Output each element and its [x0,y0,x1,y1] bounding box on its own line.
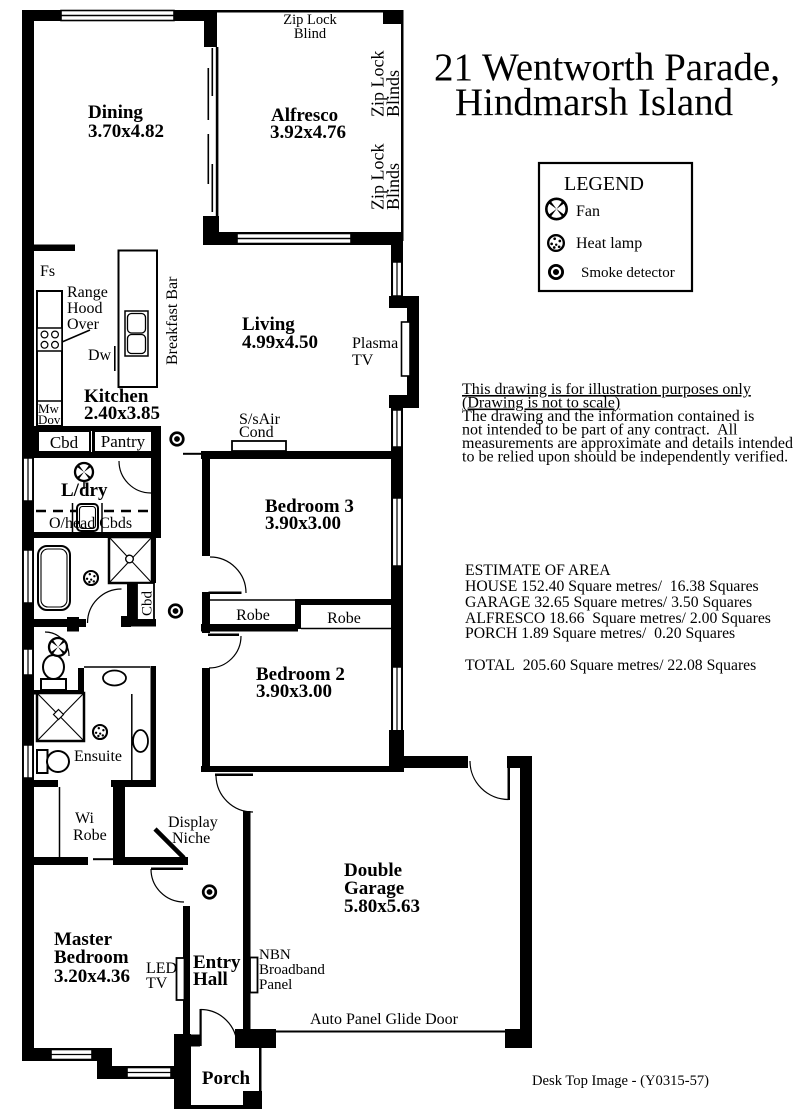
svg-text:Robe: Robe [73,827,107,844]
svg-text:4.99x4.50: 4.99x4.50 [242,332,318,353]
svg-text:Porch: Porch [202,1068,251,1089]
svg-text:3.92x4.76: 3.92x4.76 [270,122,346,143]
svg-text:Breakfast Bar: Breakfast Bar [164,276,181,365]
svg-text:TV: TV [352,352,374,369]
svg-text:Plasma: Plasma [352,335,398,352]
svg-text:3.90x3.00: 3.90x3.00 [256,681,332,702]
svg-text:Cbd: Cbd [50,433,79,452]
svg-text:Robe: Robe [236,607,270,624]
svg-text:Cond: Cond [239,424,274,441]
svg-text:to be relied upon should be in: to be relied upon should be independentl… [462,449,788,466]
svg-text:Broadband: Broadband [259,962,325,978]
svg-text:Hood: Hood [67,300,103,317]
svg-text:Display: Display [168,814,218,831]
svg-text:Panel: Panel [259,977,292,993]
svg-text:Pantry: Pantry [101,432,146,451]
svg-text:Niche: Niche [172,830,210,847]
svg-text:Blinds: Blinds [383,163,403,210]
svg-text:3.20x4.36: 3.20x4.36 [54,966,130,987]
svg-text:Smoke detector: Smoke detector [581,265,675,281]
svg-text:Hindmarsh Island: Hindmarsh Island [455,81,734,124]
svg-text:Dining: Dining [88,102,143,123]
svg-text:Fan: Fan [576,203,600,220]
svg-text:NBN: NBN [259,947,291,963]
svg-text:TOTAL 205.60 Square metres/ 2: TOTAL 205.60 Square metres/ 22.08 Square… [465,657,756,674]
svg-text:Blind: Blind [294,26,327,42]
svg-text:Ensuite: Ensuite [74,748,122,765]
svg-text:Bedroom: Bedroom [54,947,129,968]
svg-text:Dw: Dw [88,347,112,364]
svg-text:5.80x5.63: 5.80x5.63 [344,896,420,917]
svg-text:HOUSE 152.40 Square metres/ 1: HOUSE 152.40 Square metres/ 16.38 Square… [465,578,759,595]
svg-text:Dov: Dov [38,412,61,427]
svg-text:3.70x4.82: 3.70x4.82 [88,121,164,142]
svg-text:Desk Top Image - (Y0315-57): Desk Top Image - (Y0315-57) [532,1073,709,1089]
svg-text:Blinds: Blinds [383,70,403,117]
svg-text:O/head Cbds: O/head Cbds [49,515,132,532]
svg-text:Hall: Hall [193,969,228,990]
svg-text:2.40x3.85: 2.40x3.85 [84,403,160,424]
svg-text:3.90x3.00: 3.90x3.00 [265,513,341,534]
svg-text:TV: TV [146,975,168,992]
svg-text:Fs: Fs [40,263,55,280]
svg-text:Wi: Wi [75,810,94,827]
svg-text:GARAGE 32.65 Square metres/ 3.: GARAGE 32.65 Square metres/ 3.50 Squares [465,594,752,611]
svg-text:Auto Panel Glide Door: Auto Panel Glide Door [310,1011,459,1028]
svg-text:Range: Range [67,284,108,301]
svg-text:LEGEND: LEGEND [564,173,644,195]
svg-text:ESTIMATE OF AREA: ESTIMATE OF AREA [465,562,611,579]
svg-text:L/dry: L/dry [61,480,108,501]
svg-text:Over: Over [67,316,100,333]
svg-text:PORCH 1.89 Square metres/ 0.2: PORCH 1.89 Square metres/ 0.20 Squares [465,625,735,642]
svg-text:Robe: Robe [327,610,361,627]
svg-text:Heat lamp: Heat lamp [576,235,642,252]
svg-text:Cbd: Cbd [140,590,156,616]
